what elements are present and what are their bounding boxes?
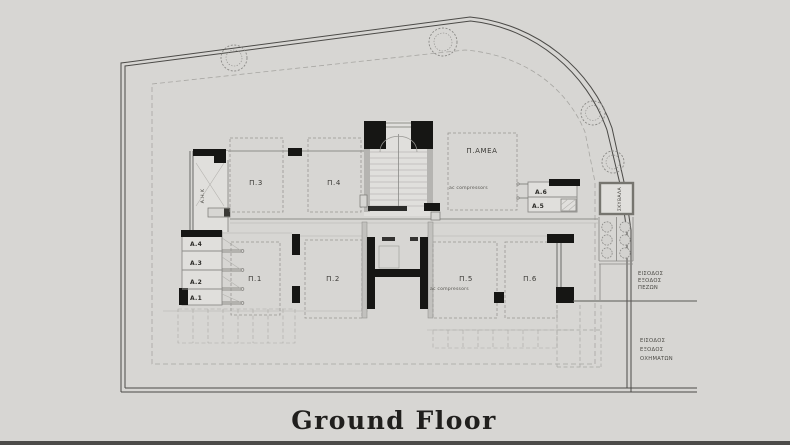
pedestrian-entrance-line1: ΕΙΣΟΔΟΣ — [638, 271, 663, 277]
parking-p2-label: Π.2 — [326, 275, 340, 283]
electrical-room: Α.Η.Κ — [190, 149, 230, 232]
ac-compressors-note-upper: ac compressors — [449, 185, 488, 191]
storage-a6-label: A.6 — [535, 189, 547, 196]
wall-column — [292, 286, 300, 303]
parking-p4-label: Π.4 — [327, 179, 341, 187]
electrical-room-label: Α.Η.Κ — [200, 188, 206, 203]
wall-column — [288, 148, 302, 156]
wall-column — [292, 234, 300, 255]
storage-a2-label: A.2 — [190, 279, 202, 286]
storage-a1-label: A.1 — [190, 295, 202, 302]
ac-compressors-note-lower: ac compressors — [430, 286, 469, 292]
garbage-room-label: ΣΚΥΒΑΛΑ — [617, 186, 623, 211]
floor-plan-drawing: Α.Η.Κ Π.3 Π.4 Π.ΑΜΕΑ — [0, 0, 790, 445]
sheet-bottom-edge — [0, 441, 790, 445]
parking-p1-label: Π.1 — [248, 275, 262, 283]
vehicle-entrance-line1: ΕΙΣΟΔΟΣ — [640, 338, 665, 344]
storage-a5-label: A.5 — [532, 203, 544, 210]
floor-plan-sheet: Α.Η.Κ Π.3 Π.4 Π.ΑΜΕΑ — [0, 0, 790, 445]
vehicle-entrance-line2: ΕΞΟΔΟΣ — [640, 347, 663, 353]
parking-accessible-label: Π.ΑΜΕΑ — [466, 147, 497, 155]
garbage-room: ΣΚΥΒΑΛΑ — [600, 183, 633, 214]
parking-p5-label: Π.5 — [459, 275, 473, 283]
storage-a3-label: A.3 — [190, 260, 202, 267]
paper-background — [0, 0, 790, 445]
pedestrian-entrance-line2: ΕΞΟΔΟΣ — [638, 278, 661, 284]
vehicle-entrance-line3: ΟΧΗΜΑΤΩΝ — [640, 356, 673, 362]
storage-a4-label: A.4 — [190, 241, 202, 248]
stairwell — [360, 121, 440, 220]
wall-column — [494, 292, 504, 303]
plan-title: Ground Floor — [291, 406, 497, 435]
parking-p3-label: Π.3 — [249, 179, 263, 187]
parking-p6-label: Π.6 — [523, 275, 537, 283]
pedestrian-entrance-line3: ΠΕΖΩΝ — [638, 285, 658, 291]
